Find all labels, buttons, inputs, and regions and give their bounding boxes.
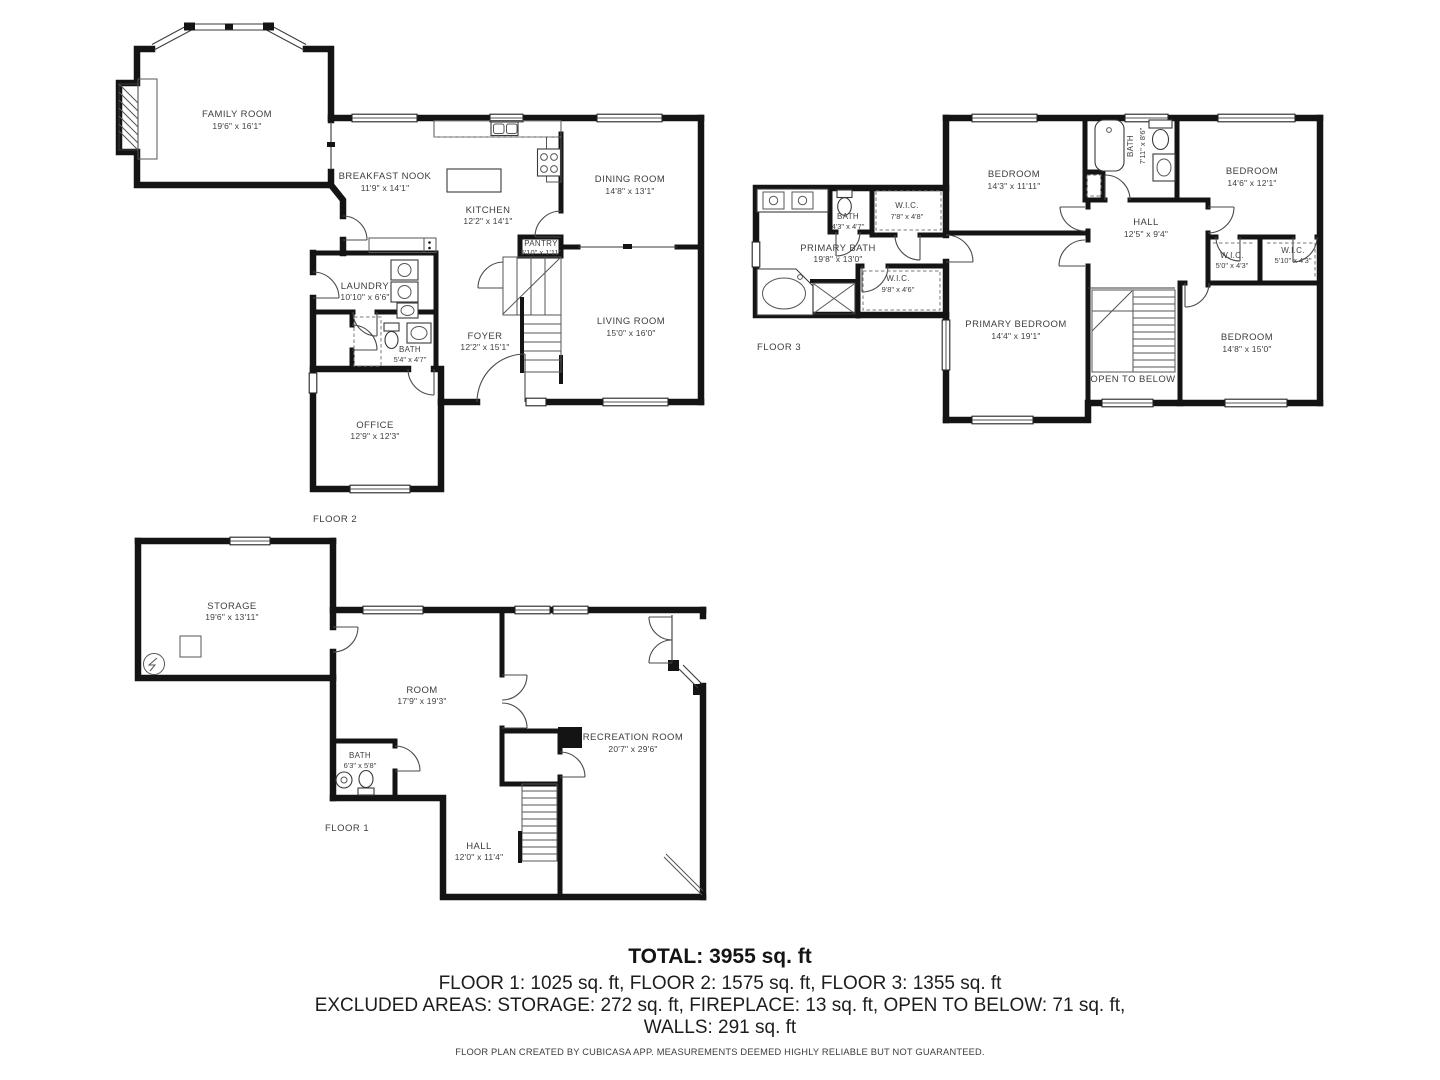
- room-label: BATH: [1126, 135, 1135, 157]
- room-label: STORAGE: [207, 601, 256, 612]
- room-label: W.I.C.: [895, 201, 919, 210]
- floor3-plan: BEDROOM 14'3" x 11'11" BATH 7'11" x 8'6"…: [752, 114, 1320, 424]
- room-label: BATH: [349, 751, 371, 760]
- bathtub-icon: [757, 269, 813, 315]
- floor1-stairs: [520, 784, 557, 861]
- room-label: RECREATION ROOM: [583, 732, 684, 743]
- room-label: PRIMARY BEDROOM: [965, 319, 1066, 330]
- room-dims: 12'5" x 9'4": [1124, 229, 1168, 239]
- room-dims: 14'4" x 19'1": [991, 331, 1040, 341]
- room-label: HALL: [466, 841, 492, 852]
- stove-icon: [538, 149, 561, 176]
- room-dims: 7'11" x 8'6": [1138, 127, 1147, 164]
- disclaimer-text: FLOOR PLAN CREATED BY CUBICASA APP. MEAS…: [455, 1047, 985, 1057]
- room-label: BEDROOM: [1221, 332, 1273, 343]
- floor2-plan: FAMILY ROOM 19'6" x 16'1" BREAKFAST NOOK…: [119, 23, 701, 526]
- floor-plan-page: FAMILY ROOM 19'6" x 16'1" BREAKFAST NOOK…: [0, 0, 1440, 1080]
- floor1-fixtures: [144, 636, 375, 795]
- room-dims: 12'2" x 14'1": [463, 216, 512, 226]
- floor1-windows: [230, 537, 588, 614]
- excluded-areas-text: EXCLUDED AREAS: STORAGE: 272 sq. ft, FIR…: [315, 995, 1126, 1016]
- room-label: W.I.C.: [1220, 251, 1244, 260]
- room-label: BEDROOM: [988, 169, 1040, 180]
- toilet-icon: [384, 323, 399, 331]
- room-dims: 14'8" x 15'0": [1222, 344, 1271, 354]
- room-label: HALL: [1133, 217, 1159, 228]
- floor2-bay-window: [152, 23, 306, 51]
- room-label: BEDROOM: [1226, 166, 1278, 177]
- linen-closet: [1087, 175, 1101, 196]
- toilet-icon: [358, 788, 374, 795]
- floor-areas-text: FLOOR 1: 1025 sq. ft, FLOOR 2: 1575 sq. …: [439, 973, 1003, 994]
- room-dims: 12'0" x 11'4": [455, 852, 504, 862]
- floor-plan-drawing: FAMILY ROOM 19'6" x 16'1" BREAKFAST NOOK…: [0, 0, 1440, 1080]
- room-dims: 14'6" x 12'1": [1227, 178, 1276, 188]
- room-dims: 9'8" x 4'6": [882, 285, 915, 294]
- room-label: BATH: [399, 345, 421, 354]
- water-heater-icon: [144, 654, 165, 675]
- floor2-laundry-fixtures: [391, 260, 418, 318]
- room-label: PANTRY: [524, 239, 558, 248]
- room-dims: 5'10" x 4'3": [1275, 256, 1312, 265]
- french-doors: [649, 617, 672, 663]
- sink-icon: [1153, 154, 1175, 181]
- room-label: PRIMARY BATH: [800, 243, 876, 254]
- room-label: DINING ROOM: [595, 174, 665, 185]
- room-label: ROOM: [406, 685, 437, 696]
- room-dims: 19'8" x 13'0": [813, 254, 862, 264]
- room-dims: 14'8" x 13'1": [605, 186, 654, 196]
- room-label: LIVING ROOM: [597, 316, 665, 327]
- sloped-ceiling-line: [664, 854, 703, 895]
- room-label: OPEN TO BELOW: [1090, 374, 1175, 385]
- floor3-stairs: [1092, 290, 1175, 372]
- room-label: OFFICE: [356, 420, 394, 431]
- room-label: W.I.C.: [1281, 246, 1305, 255]
- room-dims: 6'3" x 5'8": [344, 761, 377, 770]
- toilet-icon: [837, 190, 852, 198]
- room-dims: 5'4" x 4'7": [394, 355, 427, 364]
- room-dims: 20'7" x 29'6": [608, 744, 657, 754]
- floor2-fireplace: [119, 79, 157, 159]
- floor3-label: FLOOR 3: [757, 342, 801, 353]
- room-dims: 11'9" x 14'1": [361, 183, 410, 193]
- chimney: [558, 727, 582, 748]
- room-label: W.I.C.: [886, 274, 910, 283]
- room-label: FOYER: [468, 331, 503, 342]
- floor1-plan: STORAGE 19'6" x 13'11" ROOM 17'9" x 19'3…: [138, 537, 704, 897]
- room-dims: 19'6" x 16'1": [212, 121, 261, 131]
- room-label: BATH: [837, 212, 859, 221]
- peninsula-counter: [369, 238, 436, 253]
- floor3-labels: BEDROOM 14'3" x 11'11" BATH 7'11" x 8'6"…: [757, 127, 1312, 385]
- walls-area-text: WALLS: 291 sq. ft: [644, 1017, 797, 1038]
- room-dims: 12'9" x 12'3": [350, 431, 399, 441]
- room-dims: 14'3" x 11'11": [988, 181, 1041, 191]
- utility-box: [180, 636, 201, 657]
- hearth: [138, 79, 157, 159]
- floor2-stairs: [503, 257, 561, 372]
- room-label: LAUNDRY: [341, 281, 390, 292]
- room-dims: 19'6" x 13'11": [205, 612, 259, 622]
- room-dims: 10'10" x 6'6": [340, 292, 389, 302]
- floor3-windows: [752, 114, 1295, 424]
- floor3-bath-fixtures: [1087, 120, 1175, 196]
- room-dims: 4'3" x 4'7": [832, 222, 865, 231]
- room-dims: 5'10" x 1'11": [521, 248, 562, 257]
- double-door: [502, 675, 527, 728]
- room-dims: 7'8" x 4'8": [891, 212, 924, 221]
- island-counter: [447, 169, 501, 192]
- room-label: BREAKFAST NOOK: [339, 171, 432, 182]
- sink-icon: [336, 772, 352, 788]
- summary-block: TOTAL: 3955 sq. ft FLOOR 1: 1025 sq. ft,…: [315, 945, 1126, 1057]
- room-label: FAMILY ROOM: [202, 109, 272, 120]
- room-dims: 12'2" x 15'1": [460, 342, 509, 352]
- room-dims: 17'9" x 19'3": [397, 696, 446, 706]
- room-dims: 15'0" x 16'0": [606, 328, 655, 338]
- front-door: [477, 354, 525, 402]
- floor1-walls: [138, 541, 704, 897]
- room-label: KITCHEN: [466, 205, 511, 216]
- total-area-text: TOTAL: 3955 sq. ft: [628, 945, 812, 968]
- floor1-label: FLOOR 1: [325, 823, 369, 834]
- room-dims: 5'0" x 4'3": [1216, 261, 1249, 270]
- floor2-label: FLOOR 2: [313, 514, 357, 525]
- toilet-icon: [1149, 120, 1172, 128]
